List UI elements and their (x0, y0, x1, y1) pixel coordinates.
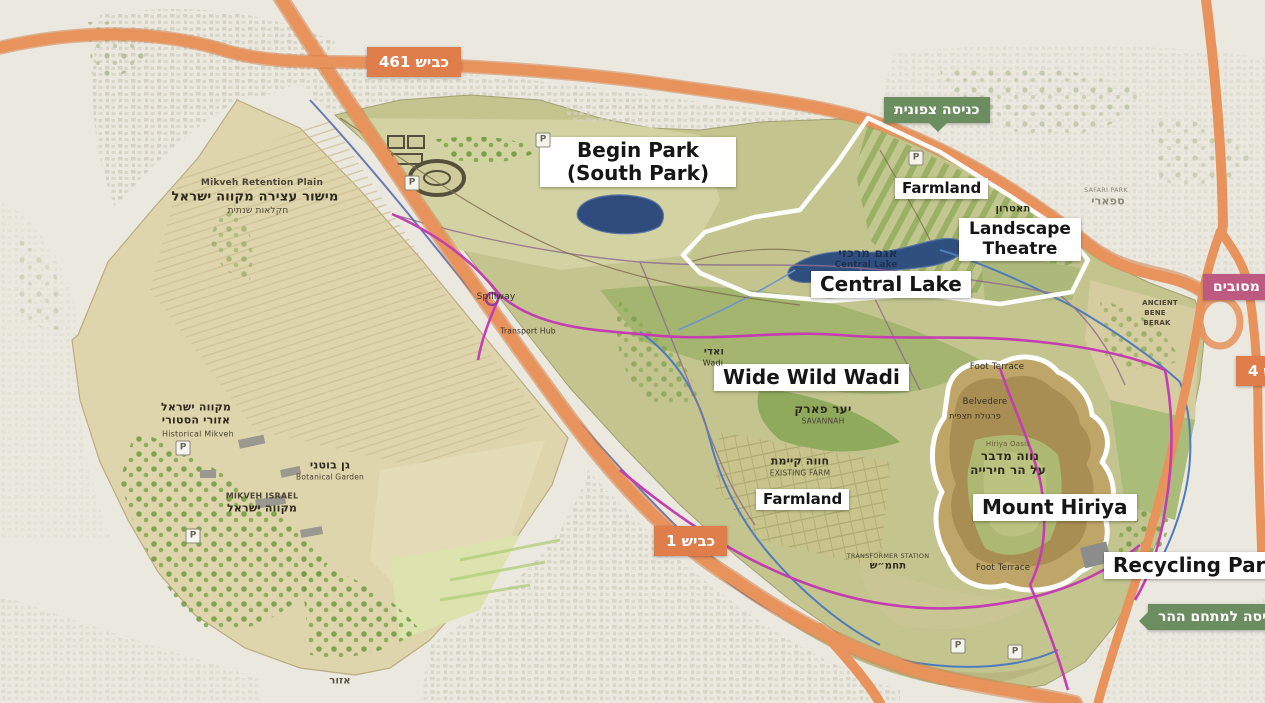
park-map: Begin Park (South Park) Farmland Landsca… (0, 0, 1265, 703)
map-canvas (0, 0, 1265, 703)
